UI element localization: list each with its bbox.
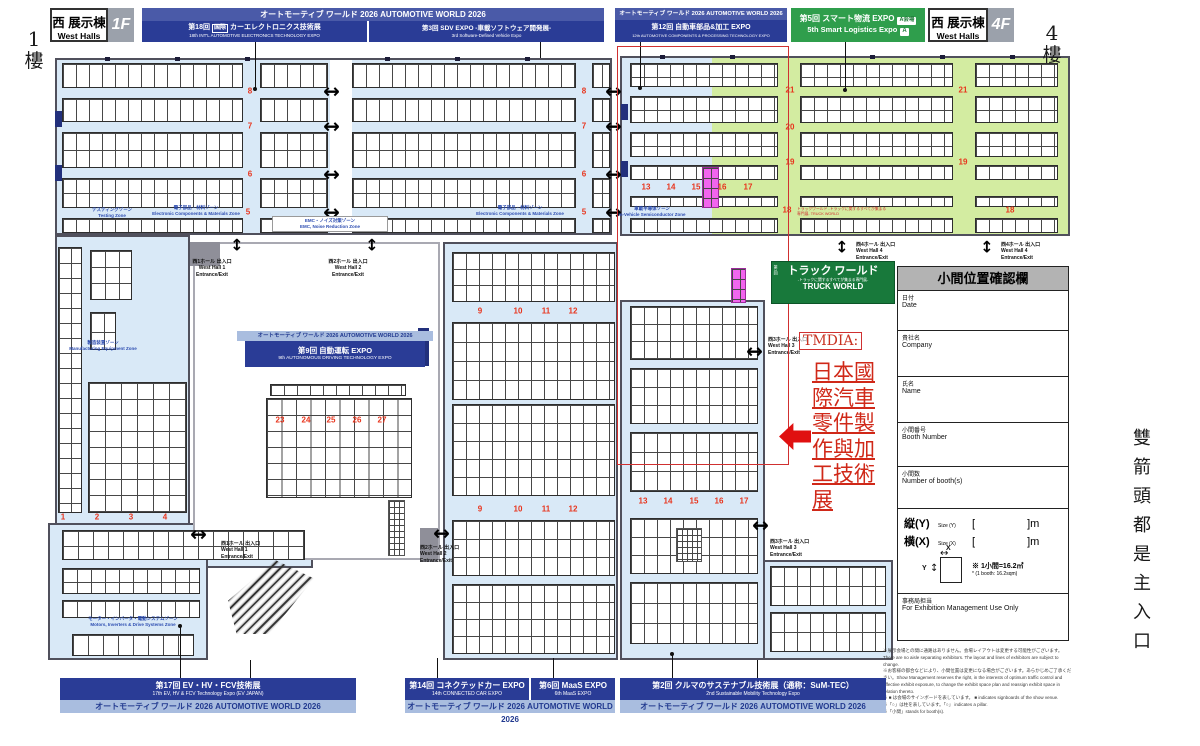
entrance-label: 西3ホール 出入口West Hall 3 Entrance/Exit <box>770 539 810 558</box>
form-row-size: 縦(Y) Size (Y) [ ]m 横(X) Size (X) [ ]m X … <box>898 509 1068 594</box>
west-halls-4f-en: West Halls <box>930 31 986 41</box>
smart-logistics-en: 5th Smart Logistics ExpoA <box>791 25 925 36</box>
tmdia-annotation-line: 作與加 <box>812 437 875 463</box>
hall-signboard <box>55 111 62 127</box>
entrance-label-en: West Hall 2 Entrance/Exit <box>322 265 374 278</box>
west-halls-jp: 西 展示棟 <box>52 12 106 31</box>
west-halls-4f-box: 西 展示棟 West Halls <box>928 8 988 42</box>
aisle-number: 11 <box>542 505 550 514</box>
aisle-number: 8 <box>248 87 252 96</box>
size-x-en: Size (X) <box>938 541 972 547</box>
aw-strip-footer-left: オートモーティブ ワールド 2026 AUTOMOTIVE WORLD 2026 <box>60 700 356 713</box>
entrance-label: 西2ホール 出入口West Hall 2 Entrance/Exit <box>420 545 460 564</box>
expo2-jp: 第2回 クルマのサステナブル技術展（通称：SuM-TEC） <box>620 681 886 691</box>
aisle-number: 5 <box>246 208 250 217</box>
fine-print: ※展示会場との間に通路はありません。会場レイアウトは変更する可能性がございます。… <box>883 648 1073 716</box>
entrance-label: 西4ホール 出入口West Hall 4 Entrance/Exit <box>856 242 914 261</box>
admin-label-jp: 事務局担当 <box>902 596 1064 605</box>
booth-block <box>270 384 406 396</box>
booth-block <box>62 132 243 168</box>
size-y-bracket-close: ]m <box>1027 518 1039 530</box>
expo2-en: 2nd Sustainable Mobility Technology Expo <box>620 691 886 697</box>
connector-dot <box>670 652 674 656</box>
tmdia-annotation-line: 日本國 <box>812 360 875 386</box>
truck-world-note: トラックワールド -トラックに関するすべてが集まる専門展- TRUCK WORL… <box>797 207 889 216</box>
stairs-icon <box>388 500 405 556</box>
booth-block <box>800 96 953 123</box>
floor-note-left: 1 樓 <box>22 28 46 73</box>
expo6-jp: 第6回 MaaS EXPO <box>531 681 615 691</box>
signboard-marker <box>455 57 460 61</box>
sdv-en: 3rd Software-Defined Vehicle Expo <box>369 33 604 39</box>
aisle-number: 6 <box>248 170 252 179</box>
signboard-marker <box>525 57 530 61</box>
aisle-number: 7 <box>248 122 252 131</box>
entrance-label-en: West Hall 1 Entrance/Exit <box>186 265 238 278</box>
fine-print-line: ※「小間」stands for booth(s). <box>883 709 1073 716</box>
tmdia-annotation-line: 展 <box>812 488 875 514</box>
maas-expo-banner: 第6回 MaaS EXPO 6th MaaS EXPO <box>531 678 615 700</box>
size-x-jp: 横(X) <box>904 533 938 549</box>
booth-block <box>352 132 576 168</box>
signboard-marker <box>870 55 875 59</box>
aisle-number: 15 <box>690 497 699 506</box>
expo9-jp: 第9回 自動運転 EXPO <box>245 346 425 356</box>
ev-expo-banner: 第17回 EV・HV・FCV技術展 17th EV, HV & FCV Tech… <box>60 678 356 700</box>
sdv-banner: 第3回 SDV EXPO -車載ソフトウェア開発展- 3rd Software-… <box>369 21 604 42</box>
booth-block <box>770 612 886 652</box>
booth-block <box>800 165 953 180</box>
entrance-label-en: West Hall 3 Entrance/Exit <box>770 545 810 558</box>
name-label-en: Name <box>902 388 1064 395</box>
banner-connector-line <box>180 626 181 678</box>
booth-block <box>452 404 615 496</box>
aisle-number: 3 <box>129 513 133 522</box>
entrance-label-en: West Hall 4 Entrance/Exit <box>856 248 914 261</box>
booth-number-label-jp: 小間番号 <box>902 425 1064 434</box>
entrance-label: 西1ホール 出入口West Hall 1 Entrance/Exit <box>221 541 261 560</box>
double-arrow-icon: ↔ <box>323 79 339 103</box>
tmdia-annotation-line: 零件製 <box>812 411 875 437</box>
zone-label: モーター・インバータ・電動システムゾーンMotors, Inverters & … <box>76 616 191 628</box>
side-note-main-entrances: 雙箭頭都是主入口 <box>1127 428 1153 660</box>
date-label-jp: 日付 <box>902 293 1064 302</box>
banner-connector-line <box>540 40 541 58</box>
aisle-number: 5 <box>582 208 586 217</box>
west-halls-4f-jp: 西 展示棟 <box>930 12 986 31</box>
booth-block <box>266 398 412 498</box>
west-halls-1f-box: 西 展示棟 West Halls <box>50 8 108 42</box>
expo17-en: 17th EV, HV & FCV Technology Expo (EV JA… <box>60 691 356 697</box>
booth-block <box>62 568 200 594</box>
zone-label-en: Motors, Inverters & Drive Systems Zone <box>76 622 191 628</box>
floor-plan-page: 1 樓 4 樓 雙箭頭都是主入口 西 展示棟 West Halls 1F オート… <box>0 0 1200 746</box>
signboard-marker <box>1010 55 1015 59</box>
expo18-jp: 第18回国際カーエレクトロニクス技術展 <box>142 24 367 34</box>
floor-note-left-number: 1 <box>22 28 46 51</box>
banner-connector-line <box>553 658 554 678</box>
zone-label-jp: モーター・インバータ・電動システムゾーン <box>76 616 191 622</box>
banner-connector-line <box>255 40 256 90</box>
form-header: 小間位置確認欄 <box>898 267 1068 291</box>
connector-dot <box>253 87 257 91</box>
automotive-world-title-right: オートモーティブ ワールド 2026 AUTOMOTIVE WORLD 2026 <box>615 8 787 20</box>
entrance-label-en: West Hall 2 Entrance/Exit <box>420 551 460 564</box>
booth-block <box>352 98 576 122</box>
floor-1f-badge: 1F <box>108 8 134 42</box>
aisle-number: 17 <box>740 497 749 506</box>
aisle-number: 27 <box>378 416 387 425</box>
smart-logistics-banner: 第5回 スマート物流 EXPOA会場 5th Smart Logistics E… <box>791 8 925 42</box>
hall-a-badge-en: A <box>900 28 908 36</box>
fine-print-line: ※「○」は柱を表しています。「○」 indicates a pillar. <box>883 702 1073 709</box>
banner-connector-line <box>757 660 758 678</box>
truck-world-banner: 第1回 トラック ワールド -トラックに関するすべてが集まる専門展- TRUCK… <box>771 261 895 304</box>
double-arrow-icon: ↔ <box>323 162 339 186</box>
size-y-jp: 縦(Y) <box>904 515 938 531</box>
aisle-number: 13 <box>639 497 648 506</box>
sdv-jp: 第3回 SDV EXPO -車載ソフトウェア開発展- <box>369 25 604 33</box>
fine-print-line: ※ ■ は会場のサインボードを表しています。 ■ indicates signb… <box>883 695 1073 702</box>
admin-label-en: For Exhibition Management Use Only <box>902 605 1064 612</box>
expo6-en: 6th MaaS EXPO <box>531 691 615 697</box>
zone-label: 電子部品・材料ゾーンElectronic Components & Materi… <box>476 205 564 217</box>
booth-block <box>62 63 243 88</box>
fine-print-line: ※お客様の都合などにより、小間位置は変更になる場合がございます。あらかじめご了承… <box>883 668 1073 695</box>
zone-label: 製造装置ゾーンManufacturing Equipment Zone <box>63 340 143 352</box>
expo14-jp: 第14回 コネクテッドカー EXPO <box>405 681 529 691</box>
booth-block <box>260 132 328 168</box>
expo18-num: 第18回 <box>188 24 210 31</box>
booth-block <box>352 63 576 88</box>
floor-4f-badge: 4F <box>988 8 1014 42</box>
entrance-label: 西4ホール 出入口West Hall 4 Entrance/Exit <box>1001 242 1059 261</box>
aisle-number: 6 <box>582 170 586 179</box>
zone-label-en: Manufacturing Equipment Zone <box>63 346 143 352</box>
booth-diagram-square <box>940 557 962 583</box>
booth-block <box>62 218 243 233</box>
floor-note-right: 4 樓 <box>1040 22 1064 67</box>
booth-block <box>800 132 953 157</box>
truck-world-jp: トラック ワールド <box>772 265 894 278</box>
expo9-en: 9th AUTONOMOUS DRIVING TECHNOLOGY EXPO <box>245 356 425 362</box>
banner-connector-line <box>250 660 251 678</box>
tmdia-label: TMDIA: <box>799 332 862 350</box>
aisle-number: 7 <box>582 122 586 131</box>
autonomous-driving-expo-banner: 第9回 自動運転 EXPO 9th AUTONOMOUS DRIVING TEC… <box>245 341 425 367</box>
truck-world-num: 第1回 <box>773 265 778 275</box>
entrance-label-en: West Hall 4 Entrance/Exit <box>1001 248 1059 261</box>
double-arrow-icon: ↕ <box>230 236 243 255</box>
zone-label: EMC・ノイズ対策ゾーンEMC, Noise Reduction Zone <box>272 216 388 232</box>
zone-label: テスティングゾーンTesting Zone <box>84 207 140 219</box>
booth-block <box>800 196 953 207</box>
signboard-marker <box>940 55 945 59</box>
zone-label-en: Testing Zone <box>84 213 140 219</box>
size-y-line: 縦(Y) Size (Y) [ ]m <box>904 515 1039 531</box>
booth-block <box>770 566 886 606</box>
double-arrow-icon: ↔ <box>433 521 449 545</box>
signboard-marker <box>175 57 180 61</box>
aisle-number: 26 <box>353 416 362 425</box>
form-row-booth-number: 小間番号 Booth Number <box>898 423 1068 467</box>
booth-block <box>260 98 328 122</box>
form-row-company: 貴社名 Company <box>898 331 1068 377</box>
aisle-number: 10 <box>514 505 523 514</box>
booth-block <box>630 582 758 644</box>
aisle-number: 2 <box>95 513 99 522</box>
size-x-line: 横(X) Size (X) [ ]m <box>904 533 1039 549</box>
aisle-number: 16 <box>715 497 724 506</box>
booth-block <box>62 98 243 122</box>
aisle-number: 11 <box>542 307 550 316</box>
diagram-y-label: Y <box>922 565 927 572</box>
form-row-date: 日付 Date <box>898 291 1068 331</box>
booth-block <box>58 247 82 513</box>
entrance-label: 西1ホール 出入口West Hall 1 Entrance/Exit <box>186 259 238 278</box>
aisle-number: 9 <box>478 307 482 316</box>
expo18-banner: 第18回国際カーエレクトロニクス技術展 18th INT'L AUTOMOTIV… <box>142 21 367 42</box>
tmdia-annotation-line: 工技術 <box>812 462 875 488</box>
booth-block <box>452 322 615 400</box>
hall-signboard <box>55 165 62 181</box>
booth-block <box>800 63 953 87</box>
booth-block <box>62 530 305 560</box>
floor-note-right-char: 樓 <box>1040 45 1064 67</box>
booth-block <box>452 252 615 302</box>
booth-block <box>452 520 615 576</box>
stairs-icon <box>676 528 702 562</box>
smart-logistics-en-text: 5th Smart Logistics Expo <box>807 25 897 34</box>
double-arrow-icon: ↕ <box>835 238 848 257</box>
booth-block <box>975 218 1058 233</box>
tmdia-highlight-outline <box>617 46 789 465</box>
booth-count-label-en: Number of booth(s) <box>902 478 1064 485</box>
expo18-name: カーエレクトロニクス技術展 <box>230 24 321 31</box>
signboard-marker <box>105 57 110 61</box>
double-arrow-icon: ↔ <box>752 513 768 537</box>
aw-strip-footer-right: オートモーティブ ワールド 2026 AUTOMOTIVE WORLD 2026 <box>620 700 886 713</box>
date-label-en: Date <box>902 302 1064 309</box>
aisle-number: 1 <box>61 513 65 522</box>
double-arrow-icon: ↔ <box>323 114 339 138</box>
booth-block <box>260 63 328 88</box>
aisle-number: 10 <box>514 307 523 316</box>
automotive-world-title: オートモーティブ ワールド 2026 AUTOMOTIVE WORLD 2026 <box>142 8 604 21</box>
aisle-number: 14 <box>664 497 673 506</box>
expo12-en: 12th AUTOMOTIVE COMPONENTS & PROCESSING … <box>615 33 787 38</box>
booth-block <box>800 218 953 233</box>
booth-block <box>72 634 194 656</box>
banner-connector-line <box>437 658 438 678</box>
truck-world-en: TRUCK WORLD <box>772 282 894 291</box>
entrance-label-en: West Hall 1 Entrance/Exit <box>221 547 261 560</box>
name-label-jp: 氏名 <box>902 379 1064 388</box>
size-y-bracket-open: [ <box>972 518 975 530</box>
floor-note-left-char: 樓 <box>22 51 46 73</box>
banner-connector-line <box>845 40 846 90</box>
zone-label-en: Electronic Components & Materials Zone <box>476 211 564 217</box>
expo17-jp: 第17回 EV・HV・FCV技術展 <box>60 681 356 691</box>
expo18-en: 18th INT'L AUTOMOTIVE ELECTRONICS TECHNO… <box>142 33 367 39</box>
aisle-number: 24 <box>302 416 311 425</box>
entrance-label: 西2ホール 出入口West Hall 2 Entrance/Exit <box>322 259 374 278</box>
zone-label-jp: テスティングゾーン <box>84 207 140 213</box>
booth-size-note-jp: ※ 1小間=16.2㎡ <box>972 561 1024 571</box>
diagram-y-arrow-icon: ↕ <box>930 563 938 574</box>
form-row-admin: 事務局担当 For Exhibition Management Use Only <box>898 594 1068 640</box>
expo12-banner: 第12回 自動車部品&加工 EXPO 12th AUTOMOTIVE COMPO… <box>615 20 787 42</box>
aisle-number: 4 <box>163 513 167 522</box>
smart-logistics-jp-text: 第5回 スマート物流 EXPO <box>800 14 895 23</box>
aisle-number: 12 <box>569 307 578 316</box>
banner-connector-line <box>672 654 673 678</box>
aisle-number: 12 <box>569 505 578 514</box>
aisle-number: 19 <box>959 158 968 167</box>
aw-strip-footer-mid: オートモーティブ ワールド 2026 AUTOMOTIVE WORLD 2026 <box>405 700 615 713</box>
signboard-marker <box>245 57 250 61</box>
booth-block <box>975 165 1058 180</box>
expo12-jp: 第12回 自動車部品&加工 EXPO <box>615 24 787 33</box>
booth-confirmation-form: 小間位置確認欄 日付 Date 貴社名 Company 氏名 Name 小間番号… <box>897 266 1069 641</box>
connector-dot <box>843 88 847 92</box>
expo18-badge: 国際 <box>212 24 228 34</box>
zone-label: 電子部品・材料ゾーンElectronic Components & Materi… <box>152 205 240 217</box>
zone-label-en: EMC, Noise Reduction Zone <box>275 224 385 230</box>
floor-note-right-number: 4 <box>1040 22 1064 45</box>
tmdia-annotation-line: 際汽車 <box>812 386 875 412</box>
double-arrow-icon: ↔ <box>190 522 206 546</box>
aisle-number: 21 <box>959 86 968 95</box>
aisle-number: 25 <box>327 416 336 425</box>
booth-size-note-en: * (1 booth: 16.2sqm) <box>972 571 1017 577</box>
size-y-en: Size (Y) <box>938 523 972 529</box>
booth-block <box>260 178 328 208</box>
booth-block <box>88 382 187 513</box>
company-label-en: Company <box>902 342 1064 349</box>
automotive-world-title-atrium: オートモーティブ ワールド 2026 AUTOMOTIVE WORLD 2026 <box>237 331 433 341</box>
company-label-jp: 貴社名 <box>902 333 1064 342</box>
west-halls-en: West Halls <box>52 31 106 41</box>
aisle-number: 9 <box>478 505 482 514</box>
tmdia-annotation: 日本國際汽車零件製作與加工技術展 <box>812 360 875 514</box>
size-x-bracket-close: ]m <box>1027 536 1039 548</box>
size-x-bracket-open: [ <box>972 536 975 548</box>
form-row-name: 氏名 Name <box>898 377 1068 423</box>
booth-block <box>62 178 243 208</box>
signboard-marker <box>385 57 390 61</box>
double-arrow-icon: ↕ <box>365 236 378 255</box>
fine-print-line: ※展示会場との間に通路はありません。会場レイアウトは変更する可能性がございます。… <box>883 648 1073 668</box>
form-row-booth-count: 小間数 Number of booth(s) <box>898 467 1068 509</box>
booth-number-label-en: Booth Number <box>902 434 1064 441</box>
booth-block <box>975 96 1058 123</box>
aisle-number: 23 <box>276 416 285 425</box>
booth-block <box>352 178 576 208</box>
escalator-icon <box>228 560 314 634</box>
booth-block <box>90 250 132 300</box>
booth-count-label-jp: 小間数 <box>902 469 1064 478</box>
booth-block <box>452 584 615 654</box>
zone-label-en: Electronic Components & Materials Zone <box>152 211 240 217</box>
aisle-number: 8 <box>582 87 586 96</box>
sum-tec-banner: 第2回 クルマのサステナブル技術展（通称：SuM-TEC） 2nd Sustai… <box>620 678 886 700</box>
booth-block <box>975 196 1058 207</box>
hall-a-badge-jp: A会場 <box>897 17 916 24</box>
double-arrow-icon: ↕ <box>980 238 993 257</box>
expo14-en: 14th CONNECTED CAR EXPO <box>405 691 529 697</box>
aisle-number: 18 <box>1006 206 1015 215</box>
booth-block <box>975 132 1058 157</box>
connected-car-banner: 第14回 コネクテッドカー EXPO 14th CONNECTED CAR EX… <box>405 678 529 700</box>
smart-logistics-jp: 第5回 スマート物流 EXPOA会場 <box>791 14 925 24</box>
